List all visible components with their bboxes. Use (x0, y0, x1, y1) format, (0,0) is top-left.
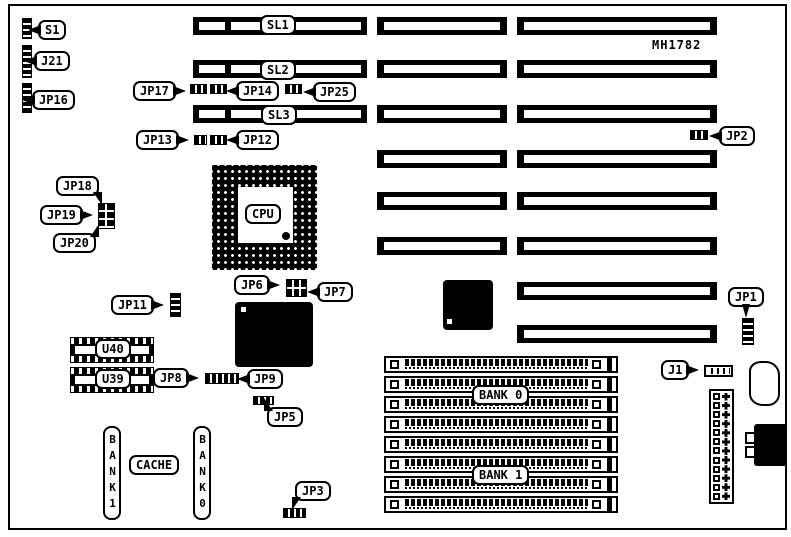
memory-bank1-text: BANK 1 (479, 468, 522, 482)
simm-contacts (405, 419, 588, 426)
callout-tail (93, 192, 102, 205)
keyboard-connector-tab (745, 432, 756, 444)
slot-16bit-segment (377, 60, 507, 78)
power-pin-hole (713, 457, 720, 464)
callout-text: JP12 (243, 133, 272, 147)
chipset-qfp-small (443, 280, 493, 330)
simm-socket (384, 356, 618, 373)
slot-label-sl3: SL3 (261, 105, 297, 125)
cpu-label-text: CPU (252, 207, 274, 221)
power-pin-cross (722, 474, 730, 482)
simm-socket (384, 416, 618, 433)
callout-tail (226, 86, 239, 96)
slot-label-sl2: SL2 (260, 60, 296, 80)
power-pin-hole (713, 493, 720, 500)
power-pin-cross (722, 402, 730, 410)
slot-key (524, 22, 710, 30)
callout-tail (80, 210, 93, 220)
callout-tail (186, 373, 199, 383)
callout-jp8: JP8 (153, 368, 189, 388)
slot-key (524, 197, 710, 205)
callout-tail (90, 224, 99, 237)
power-pin-row (713, 402, 730, 409)
callout-jp25: JP25 (313, 82, 356, 102)
callout-tail (176, 135, 189, 145)
simm-endpost (607, 498, 612, 511)
simm-endpost (607, 418, 612, 431)
callout-tail (151, 300, 164, 310)
power-pin-cross (722, 483, 730, 491)
power-pin-hole (713, 484, 720, 491)
slot-key (524, 155, 710, 163)
simm-endpost (607, 478, 612, 491)
slot-8bit-segment (517, 237, 717, 255)
simm-clip (390, 500, 399, 509)
cache-bank0-text: BANK0 (196, 433, 209, 513)
power-connector (709, 389, 734, 504)
simm-clip (592, 420, 601, 429)
callout-jp6: JP6 (234, 275, 270, 295)
slot-key (524, 110, 710, 118)
jumper-block-jp18-jp19-jp20 (99, 204, 114, 228)
callout-text: JP2 (726, 129, 748, 143)
callout-jp19: JP19 (40, 205, 83, 225)
callout-text: JP16 (39, 93, 68, 107)
callout-jp3: JP3 (295, 481, 331, 501)
callout-text: JP3 (302, 484, 324, 498)
simm-clip (592, 380, 601, 389)
keyboard-connector-tab (745, 446, 756, 458)
cache-bank1-text: BANK1 (106, 433, 119, 513)
power-pin-row (713, 438, 730, 445)
slot-8bit-segment (517, 282, 717, 300)
power-pin-row (713, 475, 730, 482)
slot-16bit-segment (377, 105, 507, 123)
power-pin-cross (722, 429, 730, 437)
simm-clip (592, 500, 601, 509)
power-pin-cross (722, 420, 730, 428)
simm-socket-area (384, 356, 618, 516)
cpu-socket-center: CPU (238, 187, 293, 243)
callout-jp9: JP9 (247, 369, 283, 389)
callout-tail (709, 131, 722, 141)
slot-8bit-segment (517, 192, 717, 210)
chip-pin1-dot (241, 307, 246, 312)
power-pin-row (713, 447, 730, 454)
simm-clip (592, 440, 601, 449)
power-pin-hole (713, 429, 720, 436)
simm-clip (390, 460, 399, 469)
slot-key (384, 65, 500, 73)
jumper-jp14 (211, 85, 226, 93)
slot-8bit-segment (517, 150, 717, 168)
memory-bank0-text: BANK 0 (479, 388, 522, 402)
power-pin-hole (713, 420, 720, 427)
slot-key (199, 22, 225, 30)
callout-jp20: JP20 (53, 233, 96, 253)
slot-key (384, 110, 500, 118)
simm-clip (390, 400, 399, 409)
slot-8bit-segment (517, 17, 717, 35)
power-pin-hole (713, 466, 720, 473)
power-pin-hole (713, 475, 720, 482)
cache-bank1-label: BANK1 (103, 426, 121, 520)
slot-label-text: SL1 (267, 18, 289, 32)
mounting-hole-outline (749, 361, 780, 406)
chipset-qfp-large (235, 302, 313, 367)
memory-bank0-label: BANK 0 (472, 385, 529, 405)
callout-text: JP18 (63, 179, 92, 193)
cpu-label: CPU (245, 204, 281, 224)
callout-tail (28, 25, 41, 35)
slot-label-text: SL3 (268, 108, 290, 122)
keyboard-connector (754, 424, 787, 466)
chip-pin1-dot (447, 319, 452, 324)
simm-clip (592, 460, 601, 469)
power-pin-hole (713, 411, 720, 418)
simm-endpost (607, 358, 612, 371)
power-pin-row (713, 493, 730, 500)
callout-text: J1 (668, 363, 682, 377)
simm-endpost (607, 438, 612, 451)
simm-clip (390, 360, 399, 369)
cpu-pin1-marker (282, 232, 290, 240)
cache-bank0-label: BANK0 (193, 426, 211, 520)
simm-clip (592, 360, 601, 369)
slot-key (199, 65, 225, 73)
simm-contacts (405, 359, 588, 366)
simm-clip (390, 480, 399, 489)
callout-tail (267, 280, 280, 290)
callout-j1: J1 (661, 360, 689, 380)
callout-text: JP13 (143, 133, 172, 147)
simm-socket (384, 436, 618, 453)
slot-16bit-segment (377, 192, 507, 210)
callout-tail (264, 398, 273, 411)
callout-text: JP20 (60, 236, 89, 250)
jumper-jp17 (191, 85, 206, 93)
callout-text: S1 (45, 23, 59, 37)
power-pin-row (713, 484, 730, 491)
callout-jp1: JP1 (728, 287, 764, 307)
cache-label-text: CACHE (136, 458, 172, 472)
callout-text: JP5 (274, 410, 296, 424)
callout-text: JP17 (140, 84, 169, 98)
slot-16bit-segment (377, 237, 507, 255)
power-pin-row (713, 420, 730, 427)
callout-jp17: JP17 (133, 81, 176, 101)
power-pin-cross (722, 393, 730, 401)
jumper-jp12 (211, 136, 226, 144)
callout-tail (226, 135, 239, 145)
cpu-socket: CPU (212, 165, 317, 270)
simm-contacts (405, 439, 588, 446)
power-pin-cross (722, 456, 730, 464)
callout-jp5: JP5 (267, 407, 303, 427)
callout-s1: S1 (38, 20, 66, 40)
callout-text: J21 (41, 54, 63, 68)
cache-label: CACHE (129, 455, 179, 475)
callout-jp13: JP13 (136, 130, 179, 150)
callout-text: JP7 (324, 285, 346, 299)
simm-endpost (607, 378, 612, 391)
jumper-block-jp6-jp7 (287, 280, 306, 296)
simm-clip (592, 400, 601, 409)
slot-key (384, 155, 500, 163)
connector-j1 (704, 365, 733, 377)
callout-jp14: JP14 (236, 81, 279, 101)
slot-key (231, 65, 361, 73)
slot-key (524, 242, 710, 250)
power-pin-row (713, 393, 730, 400)
callout-text: JP11 (118, 298, 147, 312)
power-pin-hole (713, 447, 720, 454)
chip-label-u40: U40 (95, 339, 131, 359)
callout-tail (742, 304, 750, 318)
callout-jp11: JP11 (111, 295, 154, 315)
simm-socket (384, 496, 618, 513)
callout-jp12: JP12 (236, 130, 279, 150)
slot-label-sl1: SL1 (260, 15, 296, 35)
slot-key (384, 197, 500, 205)
slot-16bit-segment (377, 150, 507, 168)
power-pin-row (713, 457, 730, 464)
jumper-jp1 (743, 319, 753, 344)
chip-label-text: U40 (102, 342, 124, 356)
slot-key (524, 287, 710, 295)
slot-16bit-segment (377, 17, 507, 35)
slot-label-text: SL2 (267, 63, 289, 77)
callout-text: JP9 (254, 372, 276, 386)
callout-jp2: JP2 (719, 126, 755, 146)
motherboard-diagram: MH1782 SL1 SL2 SL3 S1 J21 (0, 0, 791, 537)
power-pin-cross (722, 465, 730, 473)
callout-jp7: JP7 (317, 282, 353, 302)
power-pin-row (713, 429, 730, 436)
power-pin-cross (722, 411, 730, 419)
callout-j21: J21 (34, 51, 70, 71)
jumper-jp11 (171, 294, 180, 316)
simm-endpost (607, 398, 612, 411)
power-pin-cross (722, 438, 730, 446)
power-pin-cross (722, 447, 730, 455)
board-part-number: MH1782 (652, 38, 701, 52)
power-pin-row (713, 466, 730, 473)
jumper-jp25 (286, 85, 301, 93)
simm-clip (390, 420, 399, 429)
callout-text: JP8 (160, 371, 182, 385)
power-pin-cross (722, 492, 730, 500)
simm-clip (390, 380, 399, 389)
callout-text: JP1 (735, 290, 757, 304)
callout-text: JP25 (320, 85, 349, 99)
slot-key (384, 22, 500, 30)
jumper-jp13 (195, 136, 206, 144)
callout-tail (307, 287, 320, 297)
callout-text: JP6 (241, 278, 263, 292)
simm-clip (390, 440, 399, 449)
power-pin-hole (713, 402, 720, 409)
power-pin-row (713, 411, 730, 418)
slot-8bit-segment (517, 105, 717, 123)
slot-8bit-segment (517, 60, 717, 78)
power-pin-hole (713, 438, 720, 445)
callout-jp18: JP18 (56, 176, 99, 196)
callout-tail (303, 87, 316, 97)
callout-tail (24, 56, 37, 66)
jumper-jp3 (284, 509, 305, 517)
callout-tail (686, 365, 699, 375)
callout-text: JP19 (47, 208, 76, 222)
callout-tail (237, 374, 250, 384)
jumper-jp8-jp9 (206, 374, 238, 383)
callout-tail (173, 86, 186, 96)
slot-key (524, 65, 710, 73)
power-pin-hole (713, 393, 720, 400)
slot-key (524, 330, 710, 338)
simm-endpost (607, 458, 612, 471)
callout-tail (292, 497, 301, 510)
simm-clip (592, 480, 601, 489)
slot-key (231, 22, 361, 30)
simm-contacts (405, 499, 588, 506)
slot-key (199, 110, 225, 118)
jumper-jp2 (691, 131, 707, 139)
chip-label-u39: U39 (95, 369, 131, 389)
memory-bank1-label: BANK 1 (472, 465, 529, 485)
chip-label-text: U39 (102, 372, 124, 386)
callout-jp16: JP16 (32, 90, 75, 110)
callout-tail (22, 95, 35, 105)
slot-key (384, 242, 500, 250)
callout-text: JP14 (243, 84, 272, 98)
slot-8bit-segment (517, 325, 717, 343)
